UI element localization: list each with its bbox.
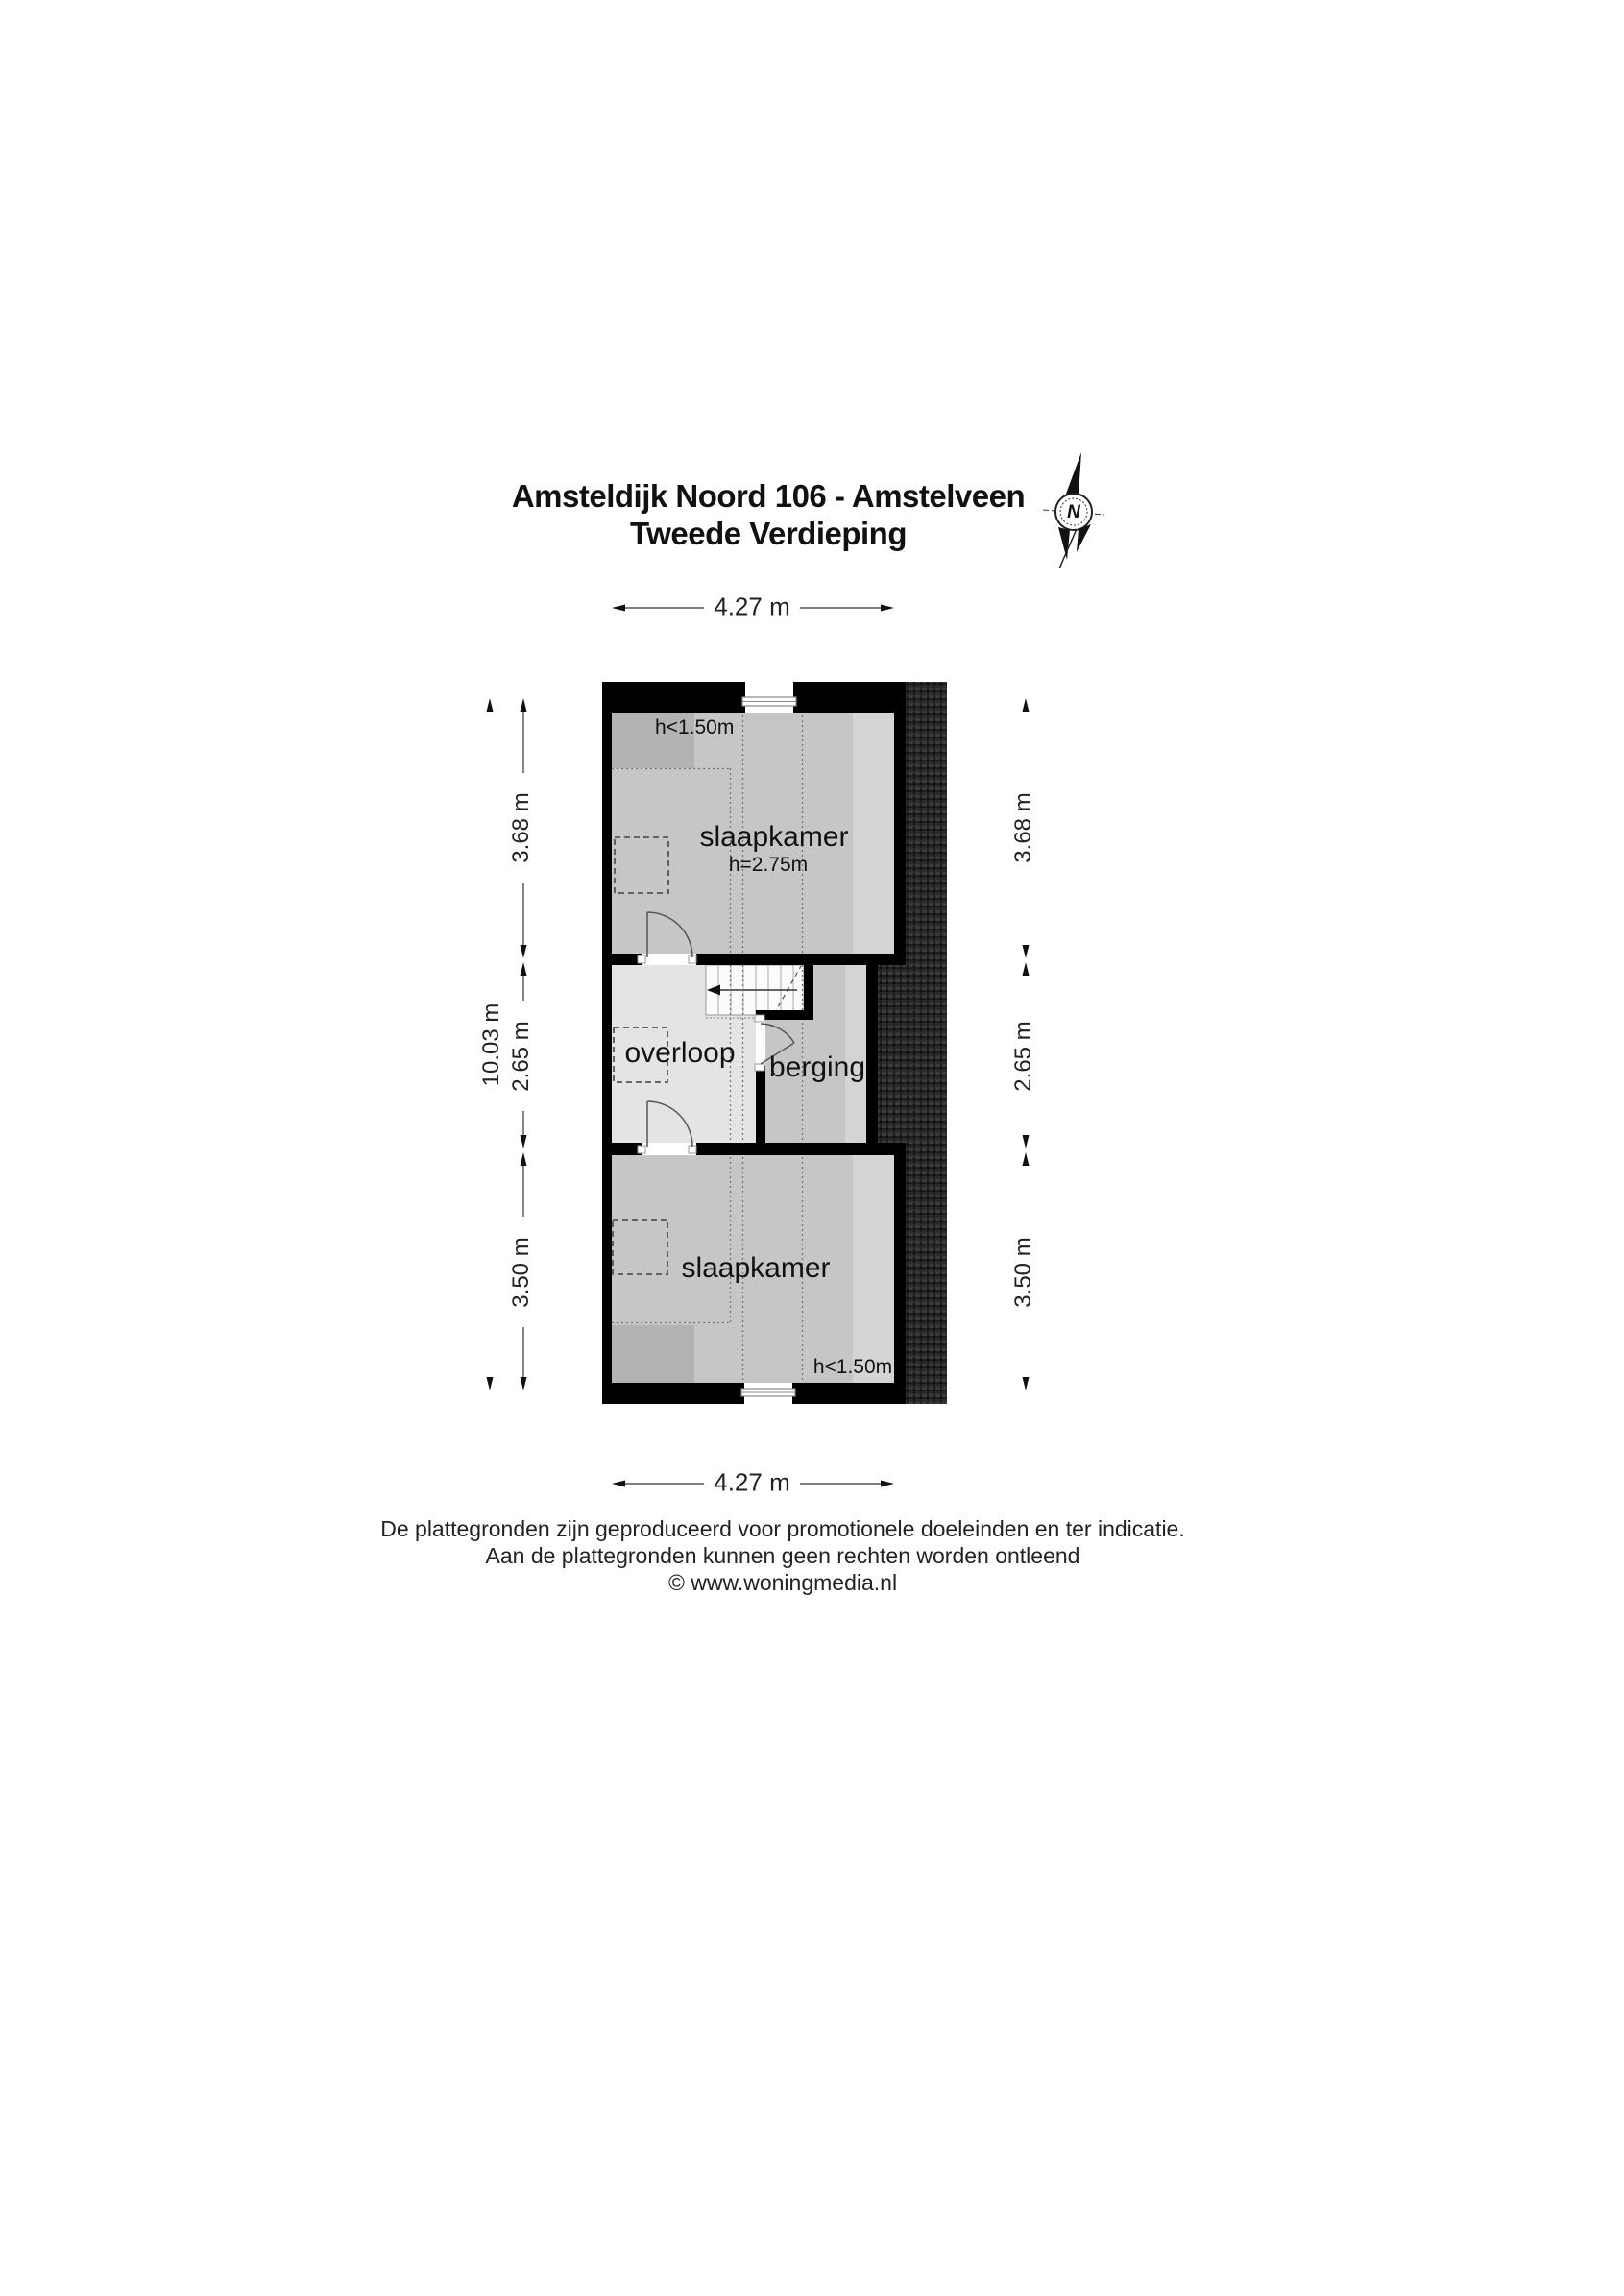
storage-label: berging: [769, 1051, 865, 1084]
bedroom-bottom-label: slaapkamer: [681, 1252, 830, 1285]
floorplan-drawing: [0, 0, 1624, 2296]
compass-north-label: N: [1067, 502, 1080, 523]
page-title-line2: Tweede Verdieping: [512, 515, 1025, 552]
bedroom-bottom-low-ceiling-note: h<1.50m: [813, 1356, 892, 1379]
page-title-line1: Amsteldijk Noord 106 - Amstelveen: [512, 477, 1025, 515]
dimension-bottom: 4.27 m: [714, 1468, 790, 1498]
staircase: [706, 965, 804, 1018]
dimension-left-seg3: 3.50 m: [508, 1237, 535, 1307]
disclaimer: De plattegronden zijn geproduceerd voor …: [380, 1515, 1185, 1596]
disclaimer-line1: De plattegronden zijn geproduceerd voor …: [380, 1515, 1185, 1542]
dimension-left-seg1: 3.68 m: [508, 792, 535, 862]
floorplan-page: Amsteldijk Noord 106 - Amstelveen Tweede…: [0, 0, 1624, 2296]
dimension-right-seg1: 3.68 m: [1010, 792, 1037, 862]
window-bottom: [741, 1383, 795, 1404]
disclaimer-line3: © www.woningmedia.nl: [380, 1569, 1185, 1596]
dimension-top: 4.27 m: [714, 592, 790, 622]
bedroom-bottom-light-band: [853, 1155, 894, 1383]
dimension-right-seg3: 3.50 m: [1010, 1237, 1037, 1307]
bedroom-top-low-ceiling-note: h<1.50m: [655, 716, 734, 739]
disclaimer-line2: Aan de plattegronden kunnen geen rechten…: [380, 1542, 1185, 1569]
dimension-right-seg2: 2.65 m: [1010, 1021, 1037, 1091]
dimension-left-total: 10.03 m: [478, 1003, 505, 1087]
landing-label: overloop: [624, 1037, 735, 1070]
bedroom-top-light-band: [853, 713, 894, 954]
bedroom-top-height-note: h=2.75m: [729, 854, 808, 877]
bedroom-top-label: slaapkamer: [699, 821, 848, 854]
window-top: [742, 682, 796, 713]
bedroom-bottom-low-ceiling-zone: [612, 1325, 694, 1383]
page-title: Amsteldijk Noord 106 - Amstelveen Tweede…: [512, 477, 1025, 552]
dimension-left-seg2: 2.65 m: [508, 1021, 535, 1091]
